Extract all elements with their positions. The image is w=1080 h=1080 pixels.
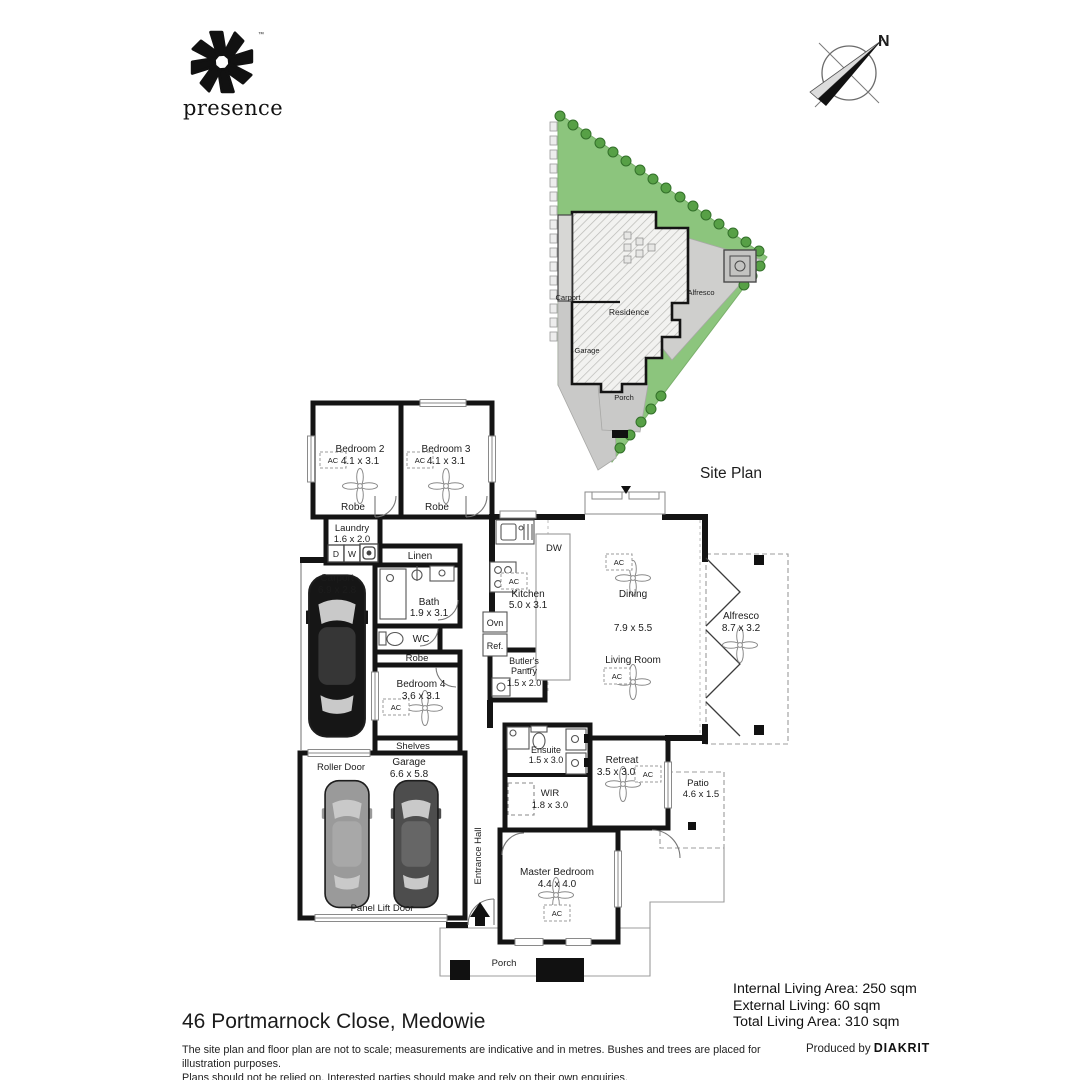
area-statistics: Internal Living Area: 250 sqm External L… [733,981,917,1031]
site-fence [550,122,557,341]
robe3-label: Robe [425,502,449,513]
kitchen-dims: 5.0 x 3.1 [509,600,548,611]
retreat-dims: 3.5 x 3.0 [597,767,636,778]
butlers-pantry-label-1: Butler's [509,656,539,666]
compass: N [810,33,890,107]
total-living-area: Total Living Area: 310 sqm [733,1014,917,1031]
site-porch-step [612,430,628,438]
ensuite-label: Ensuite [531,745,561,755]
compass-north-label: N [878,33,890,50]
site-carport-area [558,215,572,301]
bedroom3-dims: 4.1 x 3.1 [427,456,466,467]
presence-logo-text: presence [183,96,283,120]
kitchen-label: Kitchen [511,589,544,600]
washer-label: W [348,549,356,559]
plan-graphic: AC ™ N [0,0,1080,1080]
floor-plan: D W [300,400,788,983]
entrance-hall-label: Entrance Hall [473,827,484,884]
producer-credit: Produced by DIAKRIT [806,1041,930,1055]
shelves-label: Shelves [396,741,430,752]
roller-door-label: Roller Door [317,762,365,773]
garage-label: Garage [392,757,426,768]
retreat-label: Retreat [606,755,639,766]
presence-logo-icon: ™ [187,27,264,98]
alfresco-dims: 8.7 x 3.2 [722,623,761,634]
butlers-pantry-label-2: Pantry [511,666,538,676]
bath-label: Bath [419,597,440,608]
wc-toilet [379,632,403,646]
site-plan: Carport Residence Garage Porch Alfresco … [550,111,767,482]
alfresco-label: Alfresco [723,611,760,622]
carport-dims: 6.9 x 2.8 [318,585,357,596]
disclaimer: The site plan and floor plan are not to … [182,1043,802,1080]
external-living-area: External Living: 60 sqm [733,998,917,1015]
patio-label: Patio [687,778,709,789]
site-garage-label: Garage [574,346,599,355]
master-bedroom-dims: 4.4 x 4.0 [538,879,577,890]
wc-label: WC [413,634,430,645]
panel-lift-door-label: Panel Lift Door [351,903,414,914]
floorplan-page: AC ™ N [0,0,1080,1080]
dryer-label: D [333,549,339,559]
bedroom3-label: Bedroom 3 [422,444,471,455]
robe2-label: Robe [341,502,365,513]
bedroom4-label: Bedroom 4 [397,679,446,690]
bedroom2-dims: 4.1 x 3.1 [341,456,380,467]
bedroom2-label: Bedroom 2 [336,444,385,455]
produced-by-text: Produced by [806,1043,871,1055]
carport-car [305,575,369,736]
wir-label: WIR [541,788,560,799]
oven-label: Ovn [487,618,504,628]
robe4-label: Robe [406,653,429,664]
butlers-pantry-dims: 1.5 x 2.0 [507,678,542,688]
laundry-dims: 1.6 x 2.0 [334,534,370,545]
trademark-symbol: ™ [258,31,264,38]
carport-label: Carport [320,573,354,584]
site-residence-label: Residence [609,307,649,317]
wir-dims: 1.8 x 3.0 [532,800,568,811]
site-plan-title: Site Plan [700,465,762,482]
internal-living-area: Internal Living Area: 250 sqm [733,981,917,998]
living-room-label: Living Room [605,655,661,666]
ensuite-dims: 1.5 x 3.0 [529,755,564,765]
dining-label: Dining [619,589,647,600]
site-porch-label: Porch [614,393,634,402]
garage-dims: 6.6 x 5.8 [390,769,429,780]
master-bedroom-label: Master Bedroom [520,867,594,878]
patio-dims: 4.6 x 1.5 [683,789,719,800]
dw-label: DW [546,543,562,554]
site-spa [724,250,756,282]
property-address: 46 Portmarnock Close, Medowie [182,1010,485,1034]
garage-car-left [322,781,372,908]
site-alfresco-label: Alfresco [687,288,714,297]
fridge-label: Ref. [487,641,504,651]
living-dims: 7.9 x 5.5 [614,623,653,634]
bath-dims: 1.9 x 3.1 [410,608,449,619]
disclaimer-line-1: The site plan and floor plan are not to … [182,1043,802,1071]
producer-name: DIAKRIT [874,1041,930,1055]
linen-label: Linen [408,551,432,562]
laundry-label: Laundry [335,523,370,534]
porch-label: Porch [492,958,517,969]
site-carport-label: Carport [555,293,581,302]
garage-car-right [391,781,441,908]
bedroom4-dims: 3.6 x 3.1 [402,691,441,702]
disclaimer-line-2: Plans should not be relied on. Intereste… [182,1071,802,1080]
